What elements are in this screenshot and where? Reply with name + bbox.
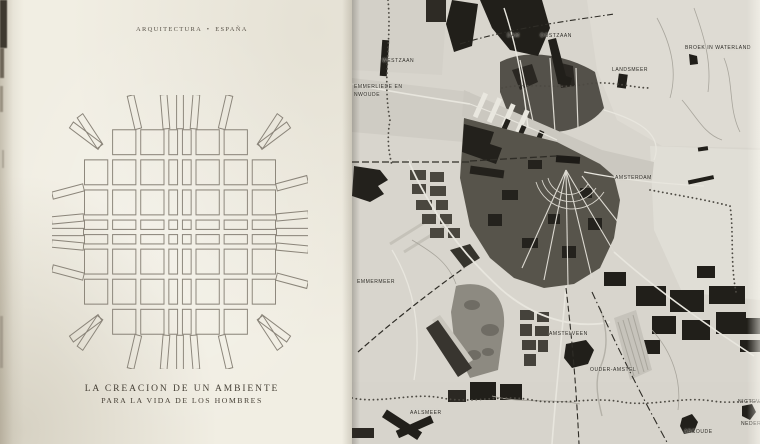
- map-label-landsmeer: LANDSMEER: [612, 67, 648, 73]
- map-label-amsterdam: AMSTERDAM: [615, 175, 652, 181]
- city-grid-diagram: [52, 95, 308, 369]
- map-labels-layer: WESTZAANDAMOOSTZAANLANDSMEERBROEK IN WAT…: [352, 0, 760, 444]
- map-label-zaandam-partial: DAM: [507, 33, 520, 39]
- map-label-oostzaan: OOSTZAAN: [540, 33, 572, 39]
- map-label-nigtevecht-partial: NIGTEVE: [738, 399, 760, 405]
- magazine-header: ARQUITECTURA • ESPAÑA: [136, 26, 248, 33]
- page-edge-mark: [0, 86, 3, 112]
- map-label-westzaan: WESTZAAN: [382, 58, 414, 64]
- left-page: ARQUITECTURA • ESPAÑA LA CREACION DE UN …: [0, 0, 352, 444]
- figure-caption: LA CREACION DE UN AMBIENTE PARA LA VIDA …: [6, 384, 358, 405]
- page-edge-mark: [0, 316, 3, 368]
- magazine-spread: ARQUITECTURA • ESPAÑA LA CREACION DE UN …: [0, 0, 760, 444]
- caption-line-2: PARA LA VIDA DE LOS HOMBRES: [6, 396, 358, 405]
- caption-line-1: LA CREACION DE UN AMBIENTE: [6, 384, 358, 394]
- map-label-broek-in-waterland: BROEK IN WATERLAND: [685, 45, 751, 51]
- map-label-ouder-amstel: OUDER-AMSTEL: [590, 367, 636, 373]
- map-label-amstelveen: AMSTELVEEN: [549, 331, 588, 337]
- map-label-abcoude: ABCOUDE: [684, 429, 713, 435]
- map-label-emmerliede-en: EMMERLIEDE EN: [354, 84, 403, 90]
- map-page: WESTZAANDAMOOSTZAANLANDSMEERBROEK IN WAT…: [352, 0, 760, 444]
- page-edge-mark: [0, 48, 4, 78]
- map-label-aalsmeer: AALSMEER: [410, 410, 442, 416]
- map-label-nwoude: NWOUDE: [354, 92, 380, 98]
- map-label-nederhorst-partial: NEDERH: [741, 421, 760, 427]
- page-edge-mark: [0, 0, 7, 48]
- map-label-emmermeer: EMMERMEER: [357, 279, 395, 285]
- page-edge-mark: [2, 150, 4, 168]
